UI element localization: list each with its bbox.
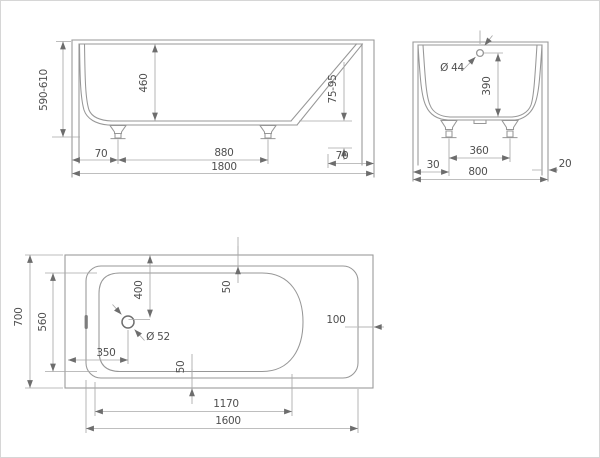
side-length-label: 1800	[211, 161, 237, 173]
side-back-offset-label: 70	[336, 150, 349, 162]
technical-drawing-canvas: 590-610 460 75-95 70 880 70 1800	[0, 0, 600, 458]
end-rim-thickness-label: 20	[559, 158, 572, 170]
plan-drain-leader-upper	[113, 305, 122, 315]
plan-drain-from-side-label: 350	[96, 347, 115, 359]
end-right-apron	[542, 42, 548, 181]
plan-drain-leader-lower	[135, 330, 145, 341]
side-bottom	[108, 121, 297, 125]
plan-drain-from-end-label: 400	[133, 280, 145, 299]
plan-length-label: 1600	[215, 415, 241, 427]
side-front-offset-label: 70	[95, 148, 108, 160]
plan-width-label: 700	[13, 307, 25, 326]
side-feet-spacing-label: 880	[214, 147, 233, 159]
plan-rim-gap-right-label: 100	[326, 314, 345, 326]
side-depth-label: 460	[138, 73, 150, 92]
plan-view: Ø 52 700 560 400 50 50 350 100 1170	[13, 237, 384, 433]
plan-basin-bottom	[99, 273, 303, 372]
side-left-apron	[72, 40, 79, 177]
plan-rim-gap-bottom-label: 50	[175, 361, 187, 374]
side-foot-height-label: 75-95	[327, 74, 339, 103]
end-overflow-leader-lower	[463, 57, 476, 71]
end-overflow-diameter-label: Ø 44	[440, 62, 464, 74]
plan-overflow-marker	[85, 315, 88, 329]
end-tub-rim	[413, 42, 548, 45]
bathtub-drawing-svg: 590-610 460 75-95 70 880 70 1800	[1, 1, 599, 457]
plan-drain-hole	[122, 316, 134, 328]
end-overflow-leader-upper	[485, 36, 493, 46]
end-width-label: 800	[468, 166, 487, 178]
side-right-apron	[362, 40, 374, 177]
end-foot-left	[441, 121, 457, 138]
side-height-label: 590-610	[38, 69, 50, 111]
side-left-wall	[80, 44, 113, 125]
plan-basin-width-label: 560	[37, 312, 49, 331]
end-left-wall	[418, 45, 450, 120]
side-foot-height-extensions	[299, 121, 352, 148]
end-left-apron	[413, 42, 418, 181]
end-right-wall	[512, 45, 542, 120]
side-view: 590-610 460 75-95 70 880 70 1800	[38, 40, 374, 177]
end-overflow-hole	[477, 50, 484, 57]
side-tub-rim	[72, 40, 374, 44]
end-view: Ø 44 390 30 360 800 20	[413, 31, 571, 182]
side-foot-left	[110, 126, 126, 139]
side-foot-right	[260, 126, 276, 139]
end-foot-right	[502, 121, 518, 138]
end-left-offset-label: 30	[427, 159, 440, 171]
side-height-extensions	[52, 42, 80, 138]
plan-basin-length-extensions	[95, 374, 292, 416]
plan-rim-gap-top-label: 50	[221, 281, 233, 294]
plan-basin-length-label: 1170	[213, 398, 239, 410]
end-overflow-height-label: 390	[481, 76, 493, 95]
end-feet-spacing-label: 360	[469, 145, 488, 157]
plan-drain-diameter-label: Ø 52	[146, 331, 170, 343]
